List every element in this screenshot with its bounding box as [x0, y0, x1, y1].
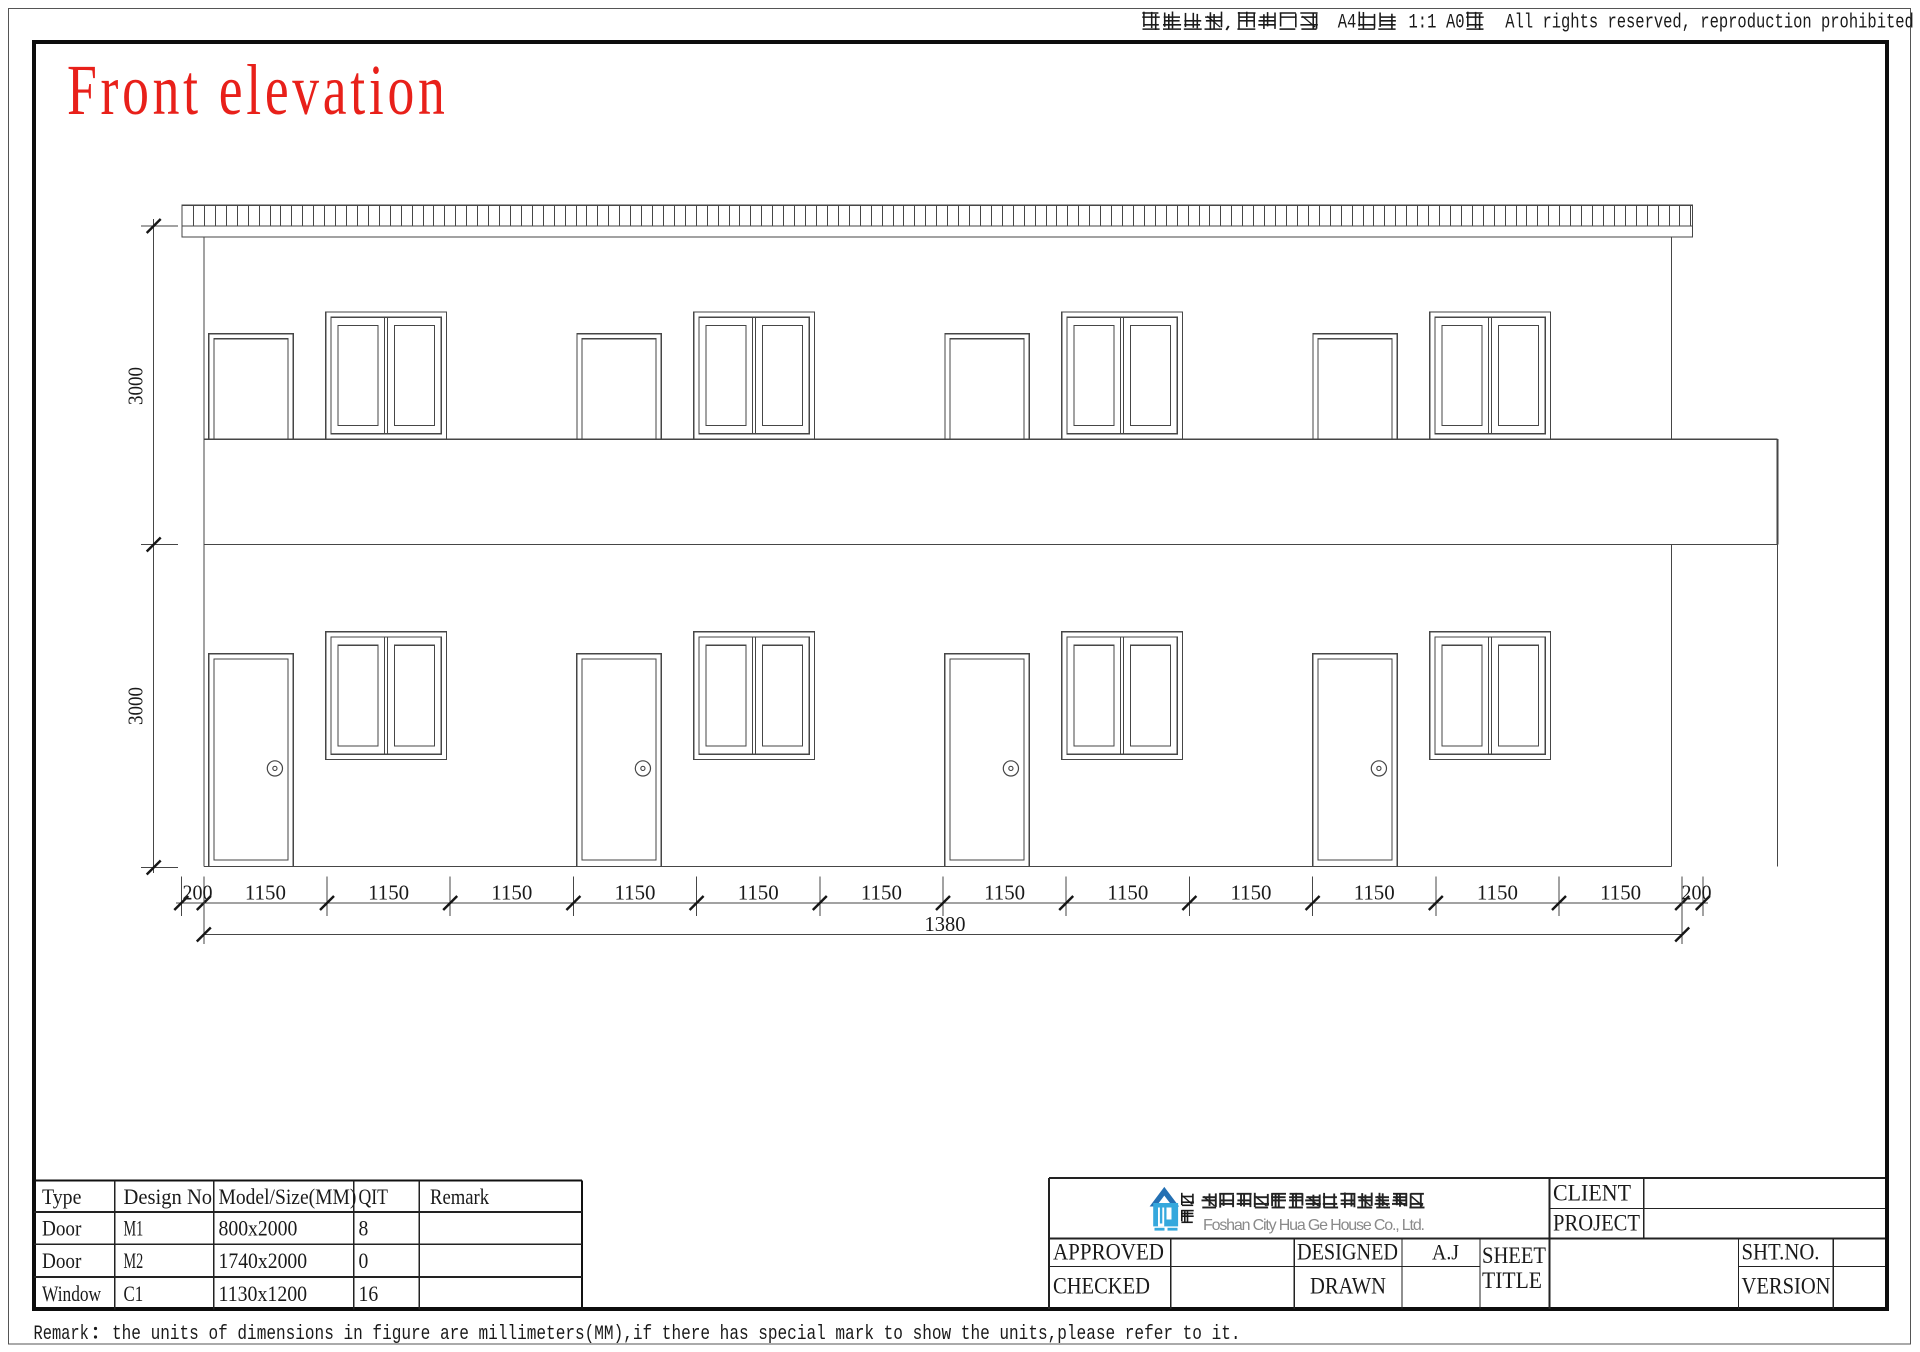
svg-text:SHT.NO.: SHT.NO.: [1742, 1240, 1820, 1265]
svg-text:1150: 1150: [1354, 881, 1395, 905]
svg-text:M2: M2: [124, 1248, 144, 1273]
svg-text:1150: 1150: [1107, 881, 1148, 905]
svg-text:VERSION: VERSION: [1742, 1274, 1831, 1299]
svg-text:the units of dimensions in fig: the units of dimensions in figure are mi…: [112, 1322, 1241, 1345]
svg-text:1130x1200: 1130x1200: [219, 1281, 308, 1306]
svg-text:PROJECT: PROJECT: [1553, 1211, 1640, 1236]
svg-text:200: 200: [1682, 881, 1712, 905]
svg-text:1380: 1380: [925, 912, 966, 936]
svg-text:1150: 1150: [368, 881, 409, 905]
svg-text:1150: 1150: [861, 881, 902, 905]
svg-text:Door: Door: [42, 1248, 82, 1273]
svg-text:8: 8: [359, 1216, 369, 1241]
svg-text:Front elevation: Front elevation: [67, 49, 445, 130]
svg-text:TITLE: TITLE: [1482, 1268, 1542, 1293]
svg-text:Type: Type: [42, 1184, 81, 1209]
svg-text:1:1: 1:1: [1409, 12, 1437, 35]
svg-text:All rights reserved, reproduct: All rights reserved, reproduction prohib…: [1505, 12, 1914, 35]
svg-text:APPROVED: APPROVED: [1053, 1240, 1164, 1265]
svg-text:16: 16: [359, 1281, 379, 1306]
svg-text:Foshan City Hua Ge House Co.,: Foshan City Hua Ge House Co., Ltd.: [1203, 1217, 1425, 1234]
svg-text:200: 200: [183, 881, 213, 905]
svg-text:0: 0: [359, 1248, 369, 1273]
svg-text:1150: 1150: [984, 881, 1025, 905]
svg-text:CLIENT: CLIENT: [1553, 1181, 1631, 1206]
svg-text:1150: 1150: [491, 881, 532, 905]
svg-text:SHEET: SHEET: [1482, 1243, 1546, 1268]
svg-text:1150: 1150: [245, 881, 286, 905]
svg-text:A.J: A.J: [1432, 1240, 1459, 1265]
svg-text:Model/Size(MM): Model/Size(MM): [219, 1184, 357, 1209]
svg-text:DRAWN: DRAWN: [1310, 1274, 1386, 1299]
svg-text:C1: C1: [124, 1281, 144, 1306]
svg-text:M1: M1: [124, 1216, 144, 1241]
svg-text:1150: 1150: [615, 881, 656, 905]
svg-text:3000: 3000: [124, 687, 148, 725]
svg-text:1740x2000: 1740x2000: [219, 1248, 308, 1273]
svg-text:Remark: Remark: [34, 1323, 89, 1346]
svg-text:CHECKED: CHECKED: [1053, 1274, 1150, 1299]
svg-text:Design No: Design No: [124, 1184, 213, 1209]
svg-text:A0: A0: [1446, 12, 1465, 35]
svg-text:1150: 1150: [738, 881, 779, 905]
svg-text:3000: 3000: [124, 367, 148, 405]
svg-text:Window: Window: [42, 1281, 101, 1306]
svg-text:A4: A4: [1338, 12, 1357, 35]
svg-text:1150: 1150: [1231, 881, 1272, 905]
svg-text:Remark: Remark: [430, 1184, 489, 1209]
svg-text:1150: 1150: [1477, 881, 1518, 905]
svg-text:1150: 1150: [1600, 881, 1641, 905]
svg-text:DESIGNED: DESIGNED: [1297, 1240, 1398, 1265]
svg-text:QIT: QIT: [359, 1184, 389, 1209]
svg-text:Door: Door: [42, 1216, 82, 1241]
svg-text:800x2000: 800x2000: [219, 1216, 298, 1241]
